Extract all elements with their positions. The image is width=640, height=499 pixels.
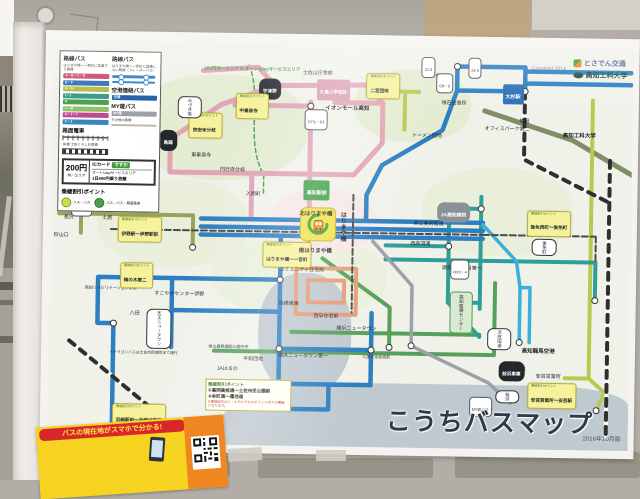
map-label: 横浜ニュータウン第一 <box>278 344 328 363</box>
airport-legend-chip: 空港 <box>111 95 157 101</box>
legend-title: 路線バス <box>112 55 158 64</box>
footnote <box>554 153 629 154</box>
map-label: 鳥越 <box>159 130 177 151</box>
legend-col1: 路線バス はりまや橋〜一宮町に直通する路線 A・B・C・DE・FG・HI・JKL… <box>62 54 109 156</box>
legend-route-bar: E・F <box>63 80 109 86</box>
legend-subtitle: はりまや橋〜一宮町に直通しない路線（フィーダーバス） <box>112 64 158 73</box>
copyright: Copyright 2014 <box>532 66 566 73</box>
map-label: 天王ニュータウン <box>146 309 171 349</box>
map-label: 西孕住宅前 <box>313 305 338 324</box>
qr-code <box>191 434 221 469</box>
feeder-line-sample <box>112 75 156 78</box>
map-label: コミュニティ住宅前 <box>279 258 324 277</box>
map-label: HX2・4 <box>450 259 470 280</box>
tape-patch-white <box>532 0 640 30</box>
map-label: 乗継割引ポイント 梅の木第二 <box>120 262 154 289</box>
map-label: 高知医療センター <box>449 292 472 334</box>
tram-legend-line <box>62 135 108 141</box>
tape-patch-tan <box>424 0 530 40</box>
map-label: 高知工科大学 <box>563 124 596 143</box>
map-label: 狩山口 <box>54 223 69 242</box>
map-label: 安芸営業所 <box>536 365 561 384</box>
myyu-legend-chip: MY遊 <box>111 111 157 117</box>
legend-route-bar: X・Z <box>63 119 109 125</box>
map-label: 横浜ニュータウン <box>336 316 376 335</box>
legend-route-bars: A・B・C・DE・FG・HI・JKL・MS・T・YX・Z <box>63 73 109 124</box>
map-label: 領石出張所 <box>441 91 466 110</box>
map-label: 入明町 <box>246 182 261 201</box>
map-label: すこやかセンター伊野 <box>154 281 204 300</box>
map-label: 土佐山庁舎前 <box>303 61 333 80</box>
bus-map-poster: 土佐山庁舎前 宇津野 乗継割引ポイント 中秦泉寺 乗継割引ポイント 宗安寺分岐 … <box>39 30 640 459</box>
bus-to-bus-icon <box>61 197 71 207</box>
map-label: 桟橋車庫 <box>279 291 299 310</box>
myyu-legend-label: MY遊バス <box>111 102 157 111</box>
legend-subtitle: はりまや橋〜一宮町に直通する路線 <box>63 63 109 72</box>
map-label: みづき坂 <box>177 96 202 118</box>
map-label: 県立美術館通 <box>413 212 443 231</box>
map-label: 西高須通 <box>410 232 430 251</box>
map-label: 北はりまや橋 <box>299 202 332 221</box>
transfer-type-2: バス→バス・路面電車 <box>94 198 140 209</box>
map-label: 県立春野運動公園中央 <box>208 334 248 353</box>
ic-card-row: ICカード ですか <box>92 161 152 170</box>
feeder-line-sample <box>112 81 156 84</box>
concrete-stain <box>258 458 433 478</box>
map-label: JAはるの <box>217 356 238 375</box>
legend-route-bar: L・M <box>63 106 109 112</box>
map-label: 22-3 <box>422 57 436 78</box>
fare-right: ICカード ですか オート1dayサービスエリア 1日500円乗り放題 <box>90 160 154 183</box>
legend-route-bar: G・H <box>63 86 109 92</box>
ic-card-label: ICカード <box>92 161 110 167</box>
fare-box: 200円 均一エリア ICカード ですか オート1dayサービスエリア 1日50… <box>62 158 156 185</box>
tape-bit <box>228 447 263 462</box>
kut-logo-icon <box>574 73 584 79</box>
map-label: 乗継割引ポイント 二宮団地 <box>366 73 400 100</box>
map-label: 乗継割引ポイント 後免西町〜後免町 <box>526 210 571 237</box>
smartphone-icon <box>149 437 166 462</box>
qr-panel <box>183 415 228 490</box>
map-label: D7①・F3 <box>305 109 328 130</box>
map-label: 乗継割引ポイント 中秦泉寺 <box>235 93 269 120</box>
tape-bit <box>316 450 346 461</box>
legend-route-bar: K <box>63 99 109 105</box>
tosaden-logo: とさでん交通 <box>574 59 628 70</box>
map-label: オフィスパーク第二 <box>484 117 529 136</box>
other-routes-label: その他の路線 <box>111 118 157 123</box>
map-label: 高知駅前 <box>304 180 330 201</box>
kut-logo: 高知工科大学 <box>573 71 627 82</box>
building-wall <box>0 56 14 86</box>
legend-route-bar: A・B・C・D <box>63 73 109 79</box>
iron-fence <box>0 86 14 112</box>
map-label: 桂浜 <box>495 390 520 403</box>
map-label: 三里文化会館前 <box>362 345 390 364</box>
transfer-type-1: バス→バス <box>61 197 90 207</box>
publisher-logos: とさでん交通 高知工科大学 <box>573 59 627 84</box>
ic-card-name: ですか <box>112 162 130 168</box>
map-label: イオンモール高知 <box>325 97 369 116</box>
airport-line <box>481 225 531 343</box>
legend-route-bar: I・J <box>63 93 109 99</box>
map-label: 乗継割引ポイント 伊野駅〜伊野駅前 <box>117 216 162 243</box>
map-label: G8・9 <box>436 73 453 94</box>
map-label: 23-3 <box>468 58 482 79</box>
legend-route-bar: S・T・Y <box>63 112 109 118</box>
map-label: 浜改田通 <box>487 328 512 350</box>
map-label: 八田 <box>129 302 139 321</box>
sky <box>0 0 14 58</box>
legend-col2: 路線バス はりまや橋〜一宮町に直通しない路線（フィーダーバス） 空港連絡バス 空… <box>111 55 158 157</box>
map-label: 東秦泉寺 <box>191 144 211 163</box>
map-label: トーメン団地 <box>412 123 442 142</box>
flat-fare: 200円 均一エリア <box>64 160 91 182</box>
photo-of-bus-map-poster: { "photo": { "copyright": "Copyright 201… <box>0 0 640 480</box>
tosaden-logo-icon <box>574 60 582 68</box>
legend-title: 路線バス <box>63 54 109 63</box>
airport-legend-label: 空港連絡バス <box>111 86 157 95</box>
map-label: 南はりまや橋 <box>299 239 332 258</box>
map-label: 久枝 <box>516 357 526 376</box>
transfer-info-box: 乗継割引ポイント ①高岡高校通〜土佐市民公園前 ②本町通〜蓮池通 ※乗継割引は①… <box>205 378 291 412</box>
day-pass-price: 1日500円乗り放題 <box>92 175 152 182</box>
other-routes-line <box>111 124 157 127</box>
transfer-legend: 乗継割引ポイント バス→バス バス→バス・路面電車 <box>61 187 155 208</box>
map-label: 高知龍馬空港 <box>522 339 555 358</box>
tram-legend-label: 路面電車 <box>62 126 108 135</box>
map-title: こうちバスマップ <box>386 401 594 440</box>
map-edition-date: 2016年10月版 <box>583 433 621 443</box>
map-label: 大杉駅 <box>502 84 523 105</box>
fare-area: 均一エリア <box>66 173 87 178</box>
map-label: 円行寺分岐 <box>220 158 245 177</box>
jr-legend-line <box>62 148 108 155</box>
map-label: 後免町 <box>532 239 557 257</box>
jr-legend-label: JR線 土佐くろしお鉄道 <box>62 142 108 147</box>
bus-kocchi-banner: バスの現在地がスマホで分かる! <box>36 415 229 499</box>
fare-price: 200円 <box>66 162 88 173</box>
legend-panel: 路線バス はりまや橋〜一宮町に直通する路線 A・B・C・DE・FG・HI・JKL… <box>57 50 162 212</box>
transfer-title: 乗継割引ポイント <box>61 187 155 196</box>
fare-area-boundary-label: 200円均一エリア ⇆ オート1dayサービスエリア <box>204 56 300 76</box>
bus-to-tram-icon <box>94 198 104 208</box>
map-face: 土佐山庁舎前 宇津野 乗継割引ポイント 中秦泉寺 乗継割引ポイント 宗安寺分岐 … <box>48 40 634 451</box>
map-label: はりまや橋 <box>333 211 352 241</box>
